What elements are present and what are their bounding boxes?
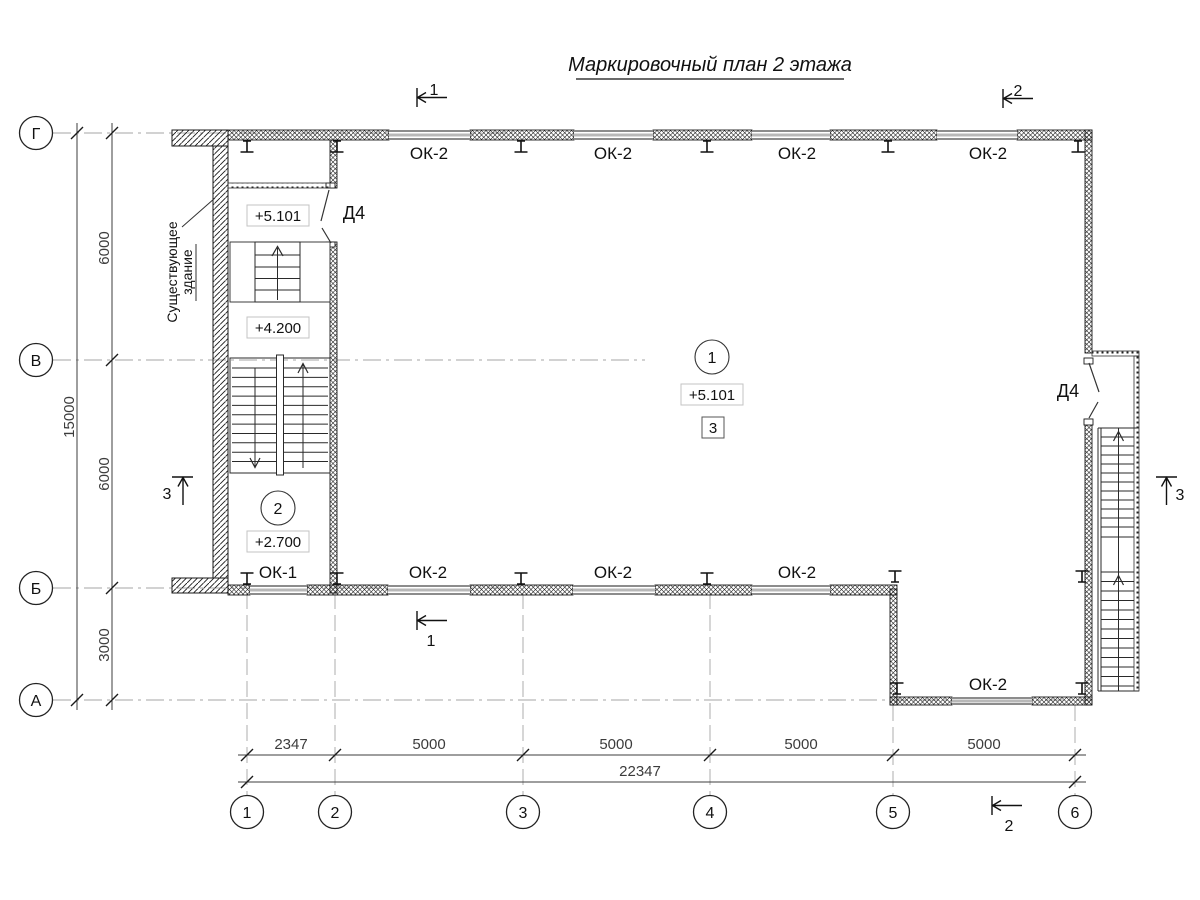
door-label-d4-right: Д4 bbox=[1057, 381, 1079, 401]
level-hall: +5.101 bbox=[689, 387, 735, 404]
existing-building-annotation: Существующее здание bbox=[164, 198, 215, 323]
columns bbox=[241, 141, 1089, 694]
dim-5000-2: 5000 bbox=[599, 736, 632, 753]
window-label-ok2-top-1: ОК-2 bbox=[410, 144, 448, 163]
annotation-existing-line2: здание bbox=[179, 249, 195, 295]
grid-circle-labels: Г В Б А 1 2 3 4 5 6 bbox=[31, 126, 1080, 822]
section-2-bottom: 2 bbox=[1005, 818, 1014, 835]
door-d4-right-leaf bbox=[1089, 363, 1099, 418]
dim-22347: 22347 bbox=[619, 763, 661, 780]
window-label-ok2-top-4: ОК-2 bbox=[969, 144, 1007, 163]
door-label-d4-left: Д4 bbox=[343, 203, 365, 223]
window-label-ok2-bottom-1: ОК-2 bbox=[409, 563, 447, 582]
axis-col-5: 5 bbox=[889, 805, 898, 822]
section-3-right: 3 bbox=[1176, 487, 1185, 504]
window-label-ok2-top-3: ОК-2 bbox=[778, 144, 816, 163]
axis-row-g: Г bbox=[32, 126, 41, 143]
leader-line bbox=[182, 198, 215, 227]
axis-row-v: В bbox=[31, 353, 42, 370]
partitions bbox=[228, 183, 1139, 691]
dim-15000: 15000 bbox=[61, 396, 78, 438]
axis-lines bbox=[53, 133, 1092, 700]
axis-col-1: 1 bbox=[243, 805, 252, 822]
floor-plan-page: 6000 6000 3000 15000 2347 5000 5000 5000… bbox=[0, 0, 1200, 900]
floor-plan-drawing: 6000 6000 3000 15000 2347 5000 5000 5000… bbox=[0, 0, 1200, 900]
room-2-number: 2 bbox=[274, 501, 283, 518]
door-d4-left-leaf bbox=[321, 190, 331, 243]
window-label-ok1: ОК-1 bbox=[259, 563, 297, 582]
grid-circles bbox=[20, 117, 1092, 829]
drawing-title: Маркировочный план 2 этажа bbox=[568, 54, 852, 79]
window-label-ok2-bottom-3: ОК-2 bbox=[778, 563, 816, 582]
dim-2347: 2347 bbox=[274, 736, 307, 753]
annotation-existing-line1: Существующее bbox=[164, 221, 180, 322]
dim-5000-3: 5000 bbox=[784, 736, 817, 753]
section-2-top: 2 bbox=[1014, 83, 1023, 100]
existing-wall bbox=[172, 130, 228, 593]
section-1-top: 1 bbox=[430, 82, 439, 99]
upper-flight bbox=[230, 242, 330, 302]
detail-3-box: 3 bbox=[709, 420, 717, 437]
level-room2: +2.700 bbox=[255, 534, 301, 551]
window-label-ok2-bottom-2: ОК-2 bbox=[594, 563, 632, 582]
dim-5000-1: 5000 bbox=[412, 736, 445, 753]
section-1-bottom: 1 bbox=[427, 633, 436, 650]
grid-lines-vertical bbox=[247, 593, 1075, 796]
axis-col-3: 3 bbox=[519, 805, 528, 822]
window-label-ok2-extension: ОК-2 bbox=[969, 675, 1007, 694]
axis-row-a: А bbox=[31, 693, 42, 710]
dim-3000: 3000 bbox=[96, 628, 113, 661]
level-stair-upper: +5.101 bbox=[255, 208, 301, 225]
dimension-texts: 6000 6000 3000 15000 2347 5000 5000 5000… bbox=[61, 231, 1001, 780]
dim-6000-a: 6000 bbox=[96, 231, 113, 264]
axis-col-4: 4 bbox=[706, 805, 715, 822]
page-title: Маркировочный план 2 этажа bbox=[568, 54, 852, 76]
dim-6000-b: 6000 bbox=[96, 457, 113, 490]
main-stair bbox=[230, 355, 330, 475]
section-mark-labels: 1 1 2 2 3 3 bbox=[163, 82, 1185, 835]
section-marks bbox=[172, 88, 1177, 815]
level-stair-mid: +4.200 bbox=[255, 320, 301, 337]
axis-col-6: 6 bbox=[1071, 805, 1080, 822]
window-openings bbox=[250, 130, 1032, 705]
section-3-left: 3 bbox=[163, 486, 172, 503]
axis-row-b: Б bbox=[31, 581, 42, 598]
dim-5000-4: 5000 bbox=[967, 736, 1000, 753]
axis-col-2: 2 bbox=[331, 805, 340, 822]
window-label-ok2-top-2: ОК-2 bbox=[594, 144, 632, 163]
room-1-number: 1 bbox=[708, 350, 717, 367]
external-stair bbox=[1098, 428, 1139, 691]
